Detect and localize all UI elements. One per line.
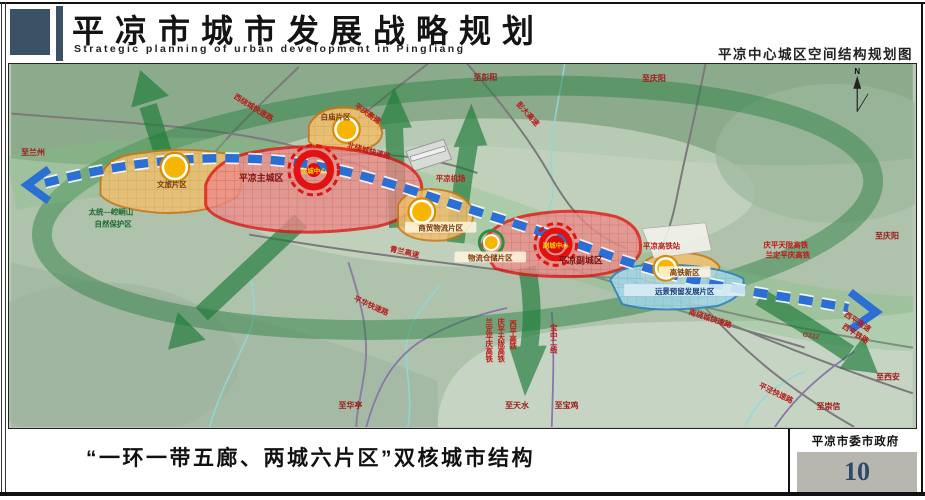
label-shangmao-district: 商贸物流片区 [418, 223, 463, 233]
page-title-english: Strategic planning of urban development … [74, 43, 465, 55]
map-subtitle: 平凉中心城区空间结构规划图 [718, 43, 913, 63]
label-main-city: 平凉主城区 [239, 172, 284, 183]
label-to-tianshui: 至天水 [505, 400, 529, 410]
structure-caption: “一环一带五廊、两城六片区”双核城市结构 [86, 442, 535, 472]
label-to-pengyang: 至彭阳 [473, 72, 497, 82]
label-main-center: 主城中心 [301, 166, 327, 175]
page-border-left-inner [5, 2, 6, 494]
label-sub-city: 平凉副城区 [558, 254, 603, 265]
label-airport: 平凉机场 [436, 173, 466, 183]
map-canvas: N 至兰州 至彭阳 至庆阳 至庆阳 至西安 至崇信 至华亭 至天水 至宝鸡 彭大… [9, 64, 915, 427]
page-border-left-outer [1, 2, 2, 494]
label-to-qingyang-top: 至庆阳 [642, 73, 666, 83]
page-border-right [921, 2, 923, 494]
label-nature-reserve-1: 太统—崆峒山 [89, 207, 134, 217]
label-to-baoji: 至宝鸡 [555, 400, 579, 410]
label-future-reserve: 远景预留发展片区 [655, 286, 715, 296]
label-wenlv-district: 文旅片区 [157, 179, 187, 189]
label-to-lanzhou: 至兰州 [21, 147, 45, 157]
label-nature-reserve-2: 自然保护区 [95, 219, 133, 229]
planning-map: N 至兰州 至彭阳 至庆阳 至庆阳 至西安 至崇信 至华亭 至天水 至宝鸡 彭大… [8, 63, 917, 429]
logo-square [10, 9, 50, 55]
label-to-xian: 至西安 [876, 371, 900, 381]
page-number-box: 10 [797, 452, 917, 492]
page-number: 10 [844, 457, 870, 487]
label-xiping-hsr-v: 西平高铁 [508, 319, 517, 350]
page-border-bottom [0, 492, 925, 496]
planning-sheet: 平凉市城市发展战略规划 Strategic planning of urban … [0, 0, 925, 500]
footer-divider [788, 429, 790, 493]
label-to-chongxin: 至崇信 [817, 401, 841, 411]
label-to-qingyang-right: 至庆阳 [875, 231, 899, 241]
label-baimiao-district: 白庙片区 [321, 112, 351, 122]
label-qingping-hsr: 庆平天陇高铁 [764, 239, 809, 249]
logo-bar [56, 6, 63, 61]
label-baozhong-line2: 宝中二线 [549, 322, 558, 354]
label-landing-hsr: 兰定平庆高铁 [766, 249, 811, 259]
label-to-huating: 至华亭 [339, 400, 363, 410]
label-qingping-hsr-v: 庆平天陇高铁 [496, 316, 505, 363]
agency-name: 平凉市委市政府 [792, 433, 919, 449]
compass-label: N [854, 67, 860, 76]
page-border-top [0, 2, 925, 4]
label-hsr-station: 平凉高铁站 [643, 240, 681, 250]
label-landing-hsr-v: 兰定平庆高铁 [484, 316, 493, 363]
label-hsr-district: 高铁新区 [670, 267, 700, 277]
label-sub-center: 副城中心 [543, 240, 569, 249]
label-cangchu-district: 物流仓储片区 [468, 252, 513, 262]
